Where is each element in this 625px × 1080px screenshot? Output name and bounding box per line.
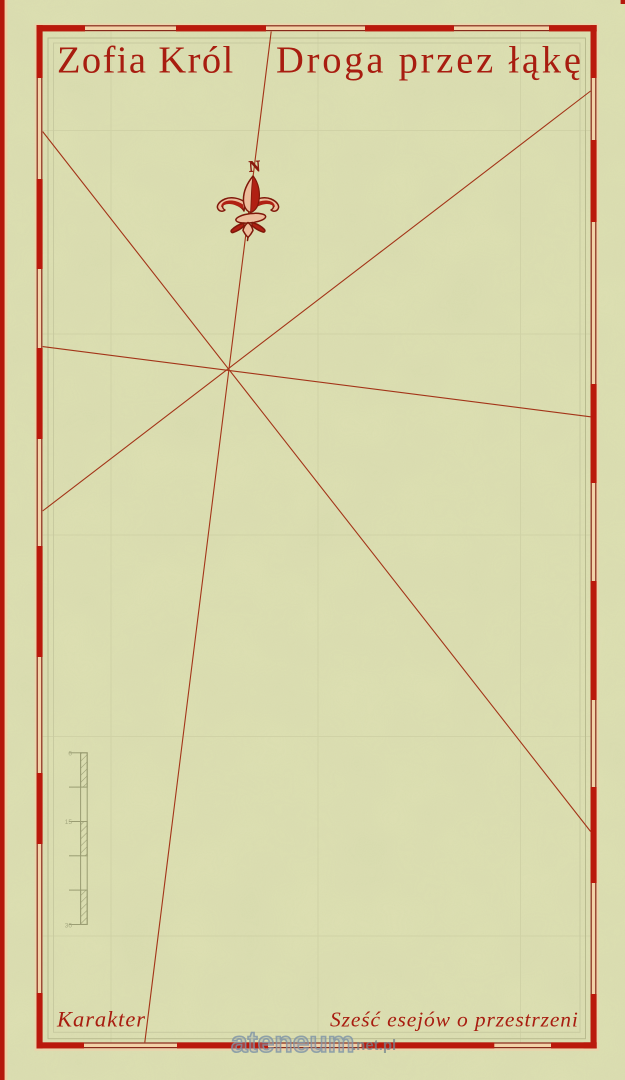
svg-text:Sześć esejów o przestrzeni: Sześć esejów o przestrzeni bbox=[330, 1008, 579, 1032]
svg-text:Karakter: Karakter bbox=[56, 1007, 146, 1032]
svg-text:30: 30 bbox=[65, 923, 73, 930]
svg-text:15: 15 bbox=[65, 819, 73, 826]
svg-text:ateneum: ateneum bbox=[231, 1026, 354, 1059]
svg-text:Zofia Król: Zofia Król bbox=[57, 40, 235, 82]
svg-text:N: N bbox=[248, 158, 261, 176]
svg-text:.net.pl: .net.pl bbox=[352, 1037, 396, 1054]
svg-text:0: 0 bbox=[68, 751, 72, 758]
svg-text:Droga przez łąkę: Droga przez łąkę bbox=[276, 40, 584, 82]
